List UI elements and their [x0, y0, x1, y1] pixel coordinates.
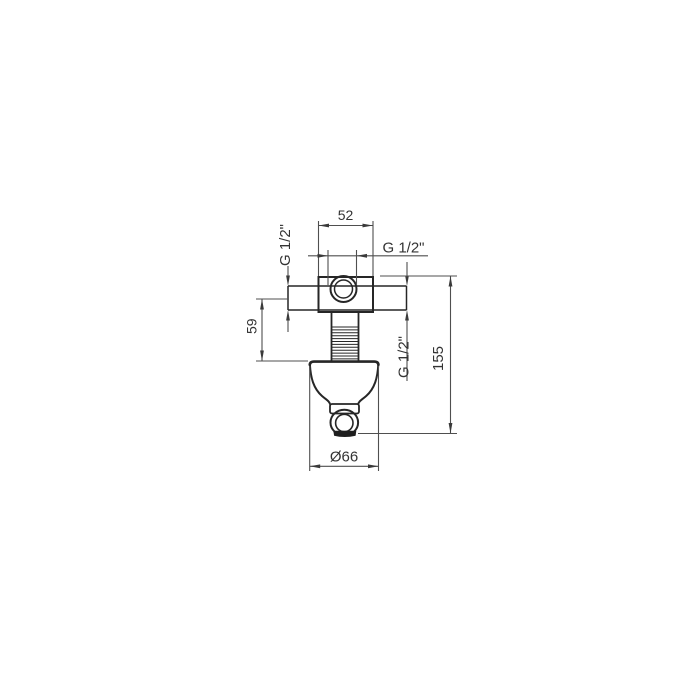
- dim-height-label: 155: [430, 346, 447, 371]
- dim-width-52: 52: [319, 207, 374, 276]
- dim-thread-top: G 1/2": [308, 240, 428, 286]
- escutcheon-rim: [310, 362, 379, 366]
- stem-thread-hatching: [332, 327, 359, 359]
- dim-thread-top-label: G 1/2": [382, 240, 424, 257]
- dim-thread-right: G 1/2": [396, 262, 413, 381]
- valve-outline: [288, 276, 407, 437]
- drawing-canvas: 52 G 1/2" G 1/2" G 1/2": [0, 0, 700, 700]
- outlet-ball-inner: [336, 414, 353, 431]
- dim-diameter-label: Ø66: [330, 449, 358, 466]
- dim-width-label: 52: [338, 207, 354, 223]
- dim-diameter-66: Ø66: [310, 366, 379, 471]
- outlet-face: [333, 431, 356, 437]
- dim-offset-59: 59: [244, 299, 309, 361]
- valve-body: [319, 277, 374, 312]
- escutcheon-right-profile: [358, 365, 378, 405]
- dim-offset-label: 59: [244, 318, 260, 334]
- dim-thread-left-label: G 1/2": [277, 224, 294, 266]
- dim-thread-left: G 1/2": [277, 224, 294, 332]
- technical-drawing: 52 G 1/2" G 1/2" G 1/2": [0, 0, 700, 700]
- dim-thread-right-label: G 1/2": [396, 336, 413, 378]
- valve-boss-inner-circle: [335, 280, 353, 298]
- escutcheon-left-profile: [310, 365, 330, 405]
